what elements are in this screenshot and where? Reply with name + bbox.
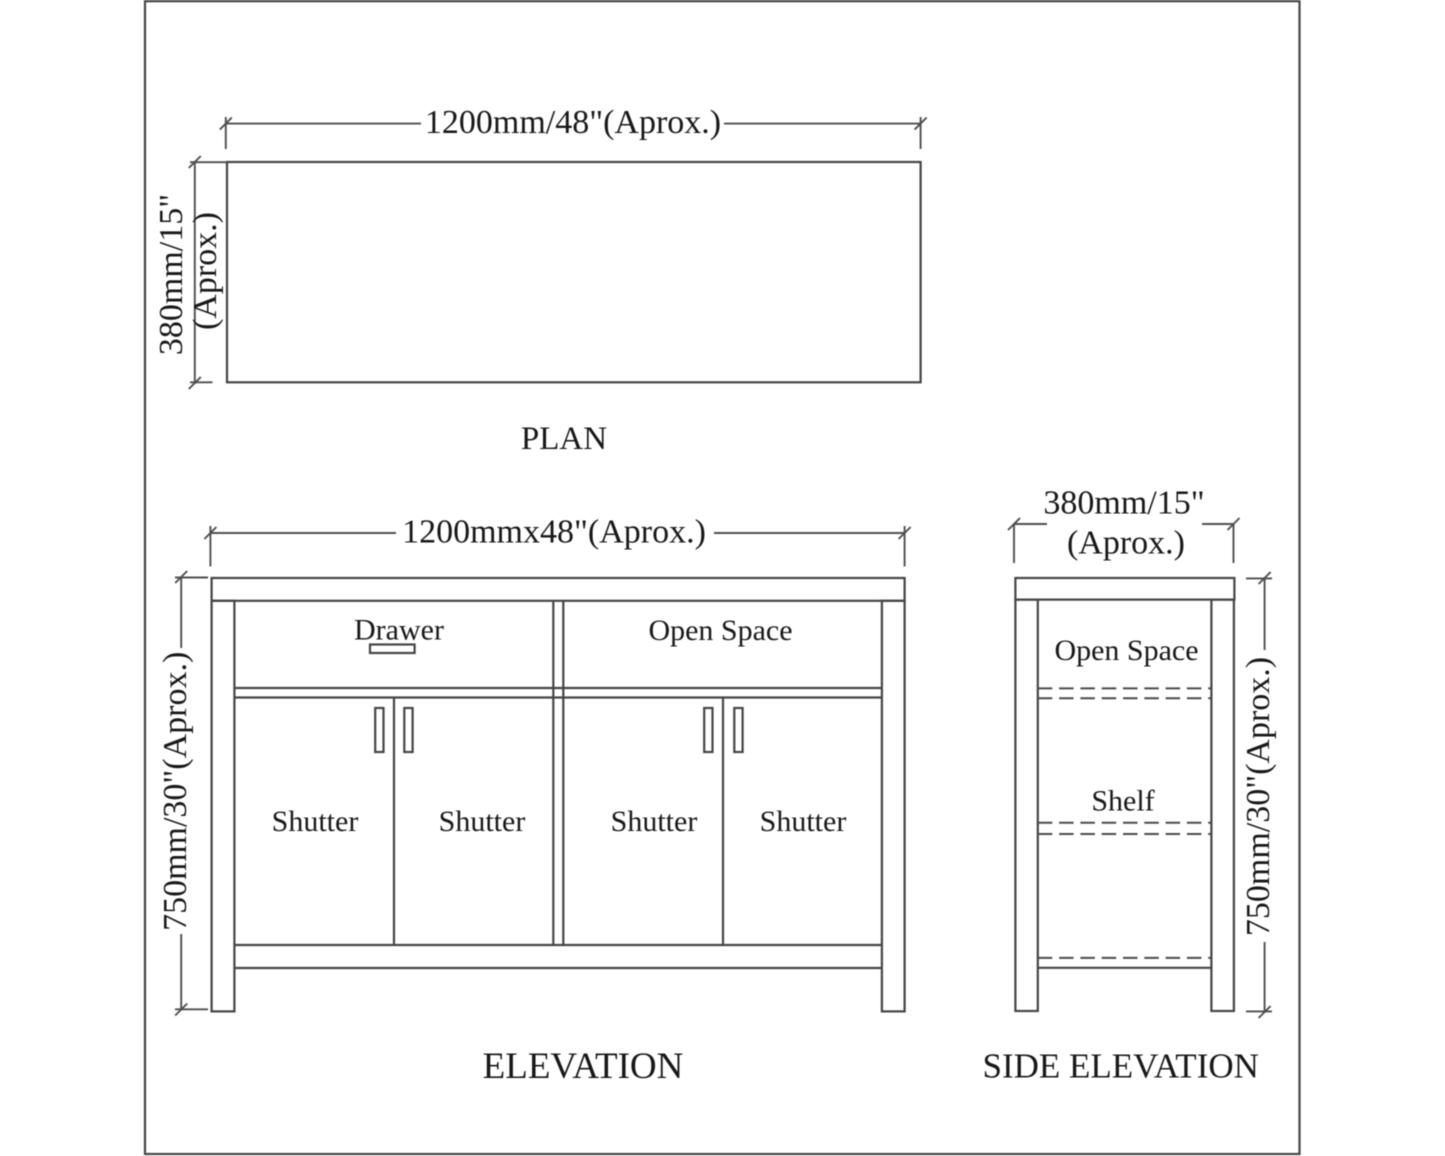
svg-text:Shutter: Shutter — [439, 805, 526, 838]
svg-text:(Aprox.): (Aprox.) — [187, 212, 224, 330]
svg-text:Open Space: Open Space — [1054, 634, 1198, 667]
svg-text:Drawer: Drawer — [354, 614, 444, 647]
svg-text:Shutter: Shutter — [611, 805, 698, 838]
svg-text:(Aprox.): (Aprox.) — [1067, 525, 1185, 562]
svg-text:PLAN: PLAN — [521, 421, 607, 457]
svg-text:380mm/15": 380mm/15" — [1043, 485, 1204, 522]
svg-text:380mm/15": 380mm/15" — [153, 194, 190, 355]
svg-text:750mm/30"(Aprox.): 750mm/30"(Aprox.) — [1240, 657, 1277, 936]
svg-text:1200mmx48"(Aprox.): 1200mmx48"(Aprox.) — [402, 514, 706, 551]
svg-text:750mm/30"(Aprox.): 750mm/30"(Aprox.) — [157, 652, 194, 931]
svg-text:1200mm/48"(Aprox.): 1200mm/48"(Aprox.) — [425, 104, 721, 141]
svg-text:Open Space: Open Space — [648, 614, 792, 647]
svg-text:ELEVATION: ELEVATION — [483, 1046, 684, 1087]
svg-text:Shelf: Shelf — [1091, 785, 1154, 818]
svg-text:SIDE ELEVATION: SIDE ELEVATION — [982, 1047, 1258, 1086]
svg-text:Shutter: Shutter — [272, 805, 359, 838]
svg-text:Shutter: Shutter — [760, 805, 847, 838]
